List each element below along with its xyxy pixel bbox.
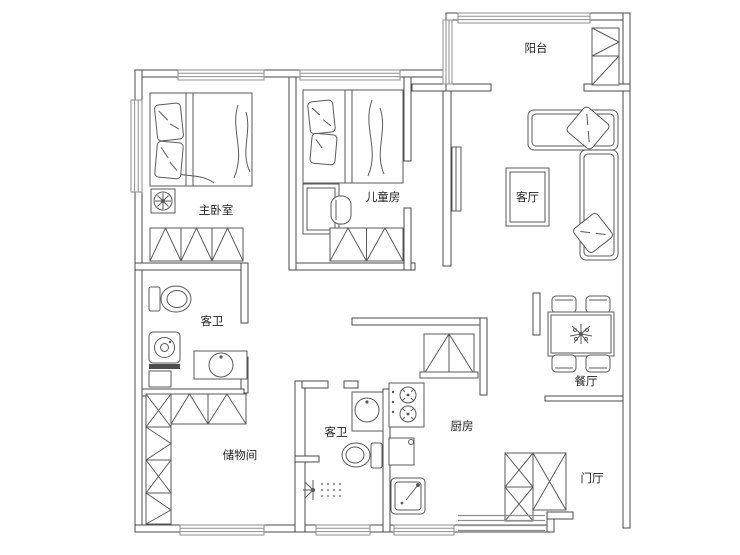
- wardrobe: [330, 228, 403, 261]
- room-label-living: 客厅: [516, 190, 539, 204]
- sink-icon: [391, 478, 425, 514]
- window-bath2-bottom: [316, 525, 370, 535]
- chair: [552, 355, 576, 372]
- window-storage-bottom: [180, 525, 264, 535]
- base-cabinet: [389, 438, 414, 465]
- shoe-cabinet: [533, 453, 566, 510]
- shelving-left: [146, 394, 171, 524]
- cabinet: [149, 371, 171, 387]
- master-bedroom: 主卧室: [150, 93, 252, 261]
- vanity-basin: [194, 351, 247, 379]
- storage-room: 储物间: [146, 394, 257, 524]
- room-label-master: 主卧室: [199, 203, 234, 217]
- room-label-bath2: 客卫: [325, 425, 348, 439]
- living-room: 客厅: [452, 105, 618, 260]
- room-label-foyer: 门厅: [581, 471, 604, 485]
- chair: [331, 196, 351, 224]
- dining-room: 餐厅: [548, 296, 614, 388]
- window-kitchen-bottom: [394, 525, 454, 535]
- counter-strip: [149, 364, 180, 369]
- window-master-left: [131, 100, 142, 192]
- pillow: [310, 133, 338, 165]
- window-master-top: [178, 70, 264, 80]
- vanity-basin: [352, 392, 383, 431]
- room-label-dining: 餐厅: [575, 374, 598, 388]
- bath-lower: 客卫: [303, 392, 383, 500]
- kids-room: 儿童房: [303, 90, 403, 261]
- tv-icon: [452, 147, 461, 211]
- pillow: [154, 103, 184, 142]
- bath-upper: 客卫: [149, 286, 247, 387]
- pillow: [154, 141, 183, 179]
- window-balcony-top: [458, 13, 590, 23]
- room-label-kitchen: 厨房: [451, 420, 474, 433]
- room-label-storage: 储物间: [223, 448, 258, 462]
- floor-plan-drawing: 主卧室 儿童房: [0, 0, 740, 555]
- chair: [586, 296, 610, 313]
- shower-spray-icon: [303, 480, 341, 500]
- foyer: 门厅: [458, 453, 604, 531]
- window-balcony-left: [443, 20, 452, 84]
- shelving-top: [171, 394, 246, 424]
- wardrobe: [150, 228, 243, 261]
- gas-stove-icon: [389, 383, 424, 427]
- storage-cabinet: [592, 28, 619, 85]
- cabinet-fridge: [420, 334, 478, 378]
- ceiling-fan-icon: [151, 189, 175, 213]
- room-label-kids: 儿童房: [366, 190, 401, 204]
- washing-machine-icon: [149, 332, 180, 363]
- chair: [552, 296, 576, 313]
- room-label-bath1: 客卫: [201, 314, 224, 328]
- pillow: [307, 100, 335, 134]
- kitchen: 厨房: [389, 334, 478, 514]
- shoe-cabinet: [505, 453, 533, 521]
- chair: [586, 355, 610, 372]
- floor-plan-canvas: 主卧室 儿童房: [0, 0, 740, 555]
- toilet-icon: [342, 443, 382, 468]
- toilet-icon: [149, 286, 191, 312]
- room-label-balcony: 阳台: [525, 41, 548, 55]
- balcony: 阳台: [525, 28, 620, 85]
- window-kids-top: [300, 70, 400, 80]
